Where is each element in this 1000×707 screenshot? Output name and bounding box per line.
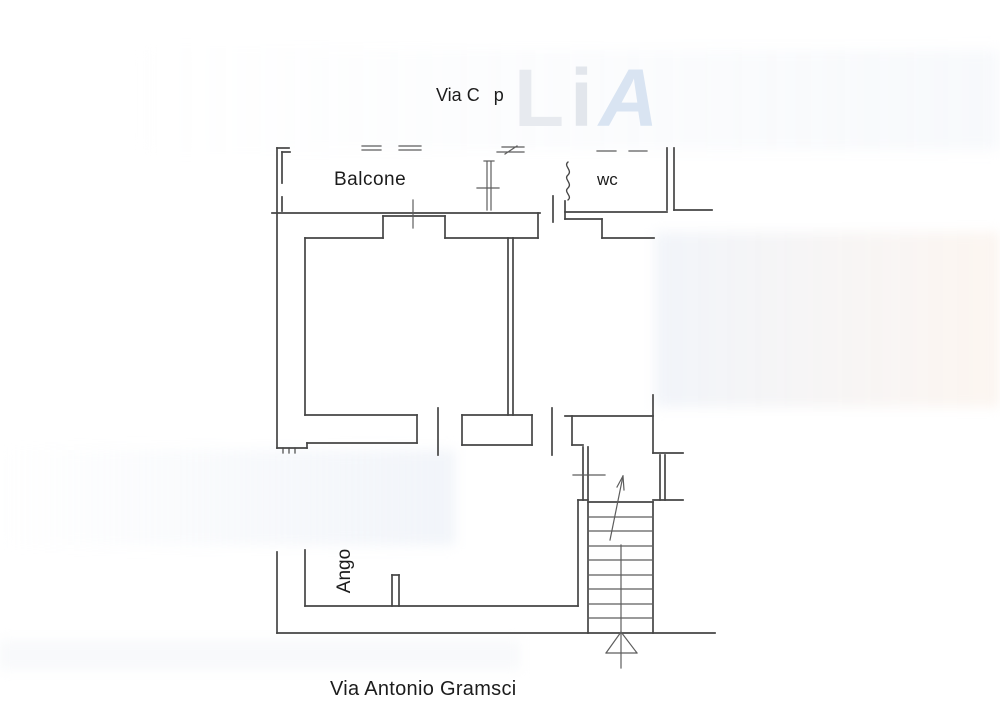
- lower-left-wall-step: [277, 415, 417, 453]
- floorplan-drawing: [0, 0, 1000, 707]
- interior-partition-wall: [508, 238, 513, 415]
- street-name-top: Via C p: [436, 85, 504, 106]
- left-outer-wall: [277, 148, 290, 448]
- kitchenette-walls: [277, 500, 578, 633]
- balcony-railing-marks: [362, 146, 524, 154]
- room-label-wc: wc: [597, 170, 618, 190]
- main-room-walls: [305, 213, 538, 415]
- street-name-bottom: Via Antonio Gramsci: [330, 678, 517, 701]
- balcony-door: [477, 161, 499, 210]
- room-label-angolo: Ango: [334, 549, 356, 593]
- room-label-balcone: Balcone: [334, 169, 406, 191]
- wall-break-squiggle: [567, 162, 570, 200]
- street-name-top-part2: p: [494, 85, 504, 106]
- wc-room-walls: [565, 148, 712, 238]
- floorplan-page: LiA: [0, 0, 1000, 707]
- street-name-top-part1: Via C: [436, 85, 480, 106]
- bottom-middle-wall-block: [438, 408, 552, 455]
- stair-axis-and-triangle: [606, 545, 637, 668]
